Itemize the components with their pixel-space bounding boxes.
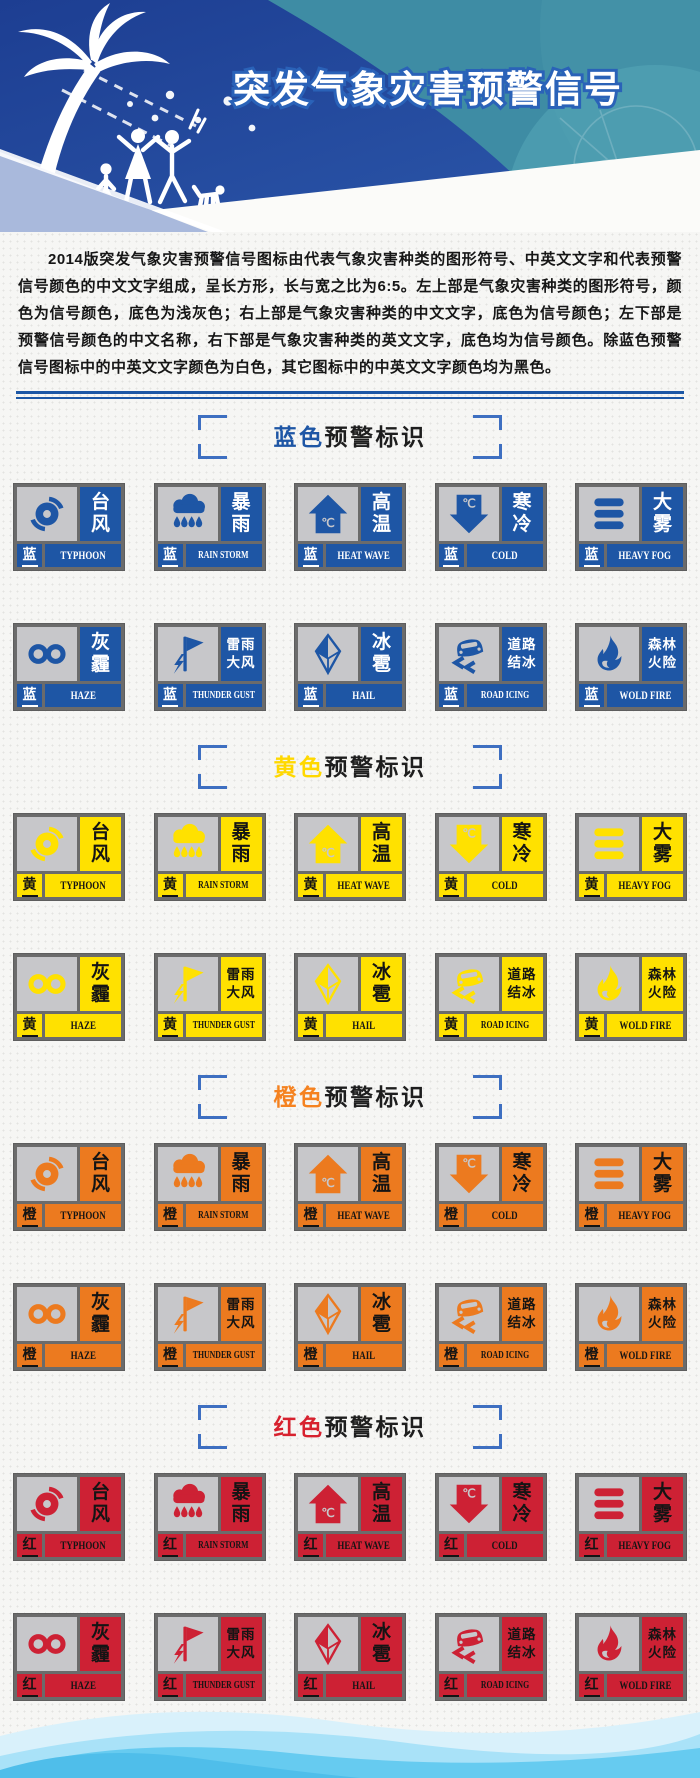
card-top: 森林火险 (579, 1287, 683, 1341)
warning-card-orange-fog: 大雾橙HEAVY FOG (575, 1143, 687, 1231)
card-row-red-1: 台风红TYPHOON暴雨红RAIN STORM℃高温红HEAT WAVE℃寒冷红… (0, 1473, 700, 1561)
card-color-badge: 黄 (17, 1014, 42, 1037)
card-top: 雷雨大风 (158, 957, 262, 1011)
card-icon-cell: ℃ (298, 817, 358, 871)
card-icon-cell (579, 487, 639, 541)
card-top: 暴雨 (158, 1477, 262, 1531)
wildfire-icon (586, 1292, 632, 1336)
card-color-badge: 黄 (579, 874, 604, 897)
card-color-badge: 蓝 (158, 684, 183, 707)
card-top: 雷雨大风 (158, 627, 262, 681)
card-color-badge: 黄 (439, 1014, 464, 1037)
card-top: 台风 (17, 1147, 121, 1201)
card-icon-cell: ℃ (298, 487, 358, 541)
card-color-badge: 橙 (439, 1344, 464, 1367)
card-color-badge: 黄 (158, 1014, 183, 1037)
card-color-badge: 红 (439, 1534, 464, 1557)
poster-page: 突发气象灾害预警信号 2014版突发气象灾害预警信号图标由代表气象灾害种类的图形… (0, 0, 700, 1778)
card-zh-label: 高温 (361, 1147, 402, 1201)
card-zh-label: 暴雨 (221, 1147, 262, 1201)
card-zh-label: 暴雨 (221, 487, 262, 541)
card-en-label: HAIL (326, 1344, 402, 1367)
card-icon-cell (439, 1617, 499, 1671)
card-zh-label: 雷雨大风 (221, 1617, 262, 1671)
card-zh-label: 高温 (361, 487, 402, 541)
warning-card-yellow-thunder-gust: 雷雨大风黄THUNDER GUST (154, 953, 266, 1041)
bracket-corner-icon (198, 415, 227, 430)
heatwave-icon: ℃ (305, 492, 351, 536)
card-zh-label: 大雾 (642, 487, 683, 541)
svg-text:℃: ℃ (321, 1506, 334, 1520)
card-bottom: 红HEAVY FOG (579, 1534, 683, 1557)
card-en-label: WOLD FIRE (607, 1014, 683, 1037)
card-icon-cell (298, 627, 358, 681)
card-color-badge: 蓝 (439, 684, 464, 707)
card-en-label: ROAD ICING (467, 684, 543, 707)
card-zh-label: 大雾 (642, 1147, 683, 1201)
card-bottom: 蓝HEAT WAVE (298, 544, 402, 567)
card-zh-label: 台风 (80, 1147, 121, 1201)
warning-card-orange-typhoon: 台风橙TYPHOON (13, 1143, 125, 1231)
thunder-gust-icon (165, 962, 211, 1006)
card-color-badge: 黄 (579, 1014, 604, 1037)
card-zh-label: 森林火险 (642, 1287, 683, 1341)
card-bottom: 黄THUNDER GUST (158, 1014, 262, 1037)
warning-card-red-fog: 大雾红HEAVY FOG (575, 1473, 687, 1561)
banner: 突发气象灾害预警信号 (0, 0, 700, 232)
card-color-badge: 蓝 (298, 684, 323, 707)
card-color-badge: 蓝 (439, 544, 464, 567)
card-color-badge: 红 (17, 1534, 42, 1557)
card-en-label: COLD (467, 874, 543, 897)
warning-sections: 蓝色预警标识台风蓝TYPHOON暴雨蓝RAIN STORM℃高温蓝HEAT WA… (0, 415, 700, 1701)
warning-card-yellow-haze: 灰霾黄HAZE (13, 953, 125, 1041)
card-en-label: THUNDER GUST (186, 1344, 262, 1367)
card-zh-label: 大雾 (642, 817, 683, 871)
section-title-rest: 预警标识 (325, 1084, 427, 1110)
warning-card-red-heatwave: ℃高温红HEAT WAVE (294, 1473, 406, 1561)
card-top: 雷雨大风 (158, 1617, 262, 1671)
card-en-label: THUNDER GUST (186, 684, 262, 707)
warning-card-blue-rainstorm: 暴雨蓝RAIN STORM (154, 483, 266, 571)
card-icon-cell (579, 1617, 639, 1671)
haze-icon (24, 962, 70, 1006)
card-icon-cell (298, 1287, 358, 1341)
warning-card-orange-wildfire: 森林火险橙WOLD FIRE (575, 1283, 687, 1371)
card-color-badge: 蓝 (298, 544, 323, 567)
card-zh-label: 寒冷 (502, 817, 543, 871)
card-bottom: 蓝COLD (439, 544, 543, 567)
card-icon-cell (158, 1617, 218, 1671)
card-icon-cell (158, 627, 218, 681)
card-top: 台风 (17, 1477, 121, 1531)
card-bottom: 黄HAZE (17, 1014, 121, 1037)
card-top: 大雾 (579, 1147, 683, 1201)
section-title-rest: 预警标识 (325, 424, 427, 450)
card-bottom: 红TYPHOON (17, 1534, 121, 1557)
card-bottom: 橙RAIN STORM (158, 1204, 262, 1227)
card-row-orange-1: 台风橙TYPHOON暴雨橙RAIN STORM℃高温橙HEAT WAVE℃寒冷橙… (0, 1143, 700, 1231)
card-color-badge: 橙 (158, 1204, 183, 1227)
card-en-label: TYPHOON (45, 874, 121, 897)
warning-card-yellow-cold: ℃寒冷黄COLD (435, 813, 547, 901)
warning-card-red-cold: ℃寒冷红COLD (435, 1473, 547, 1561)
bracket-corner-icon (473, 745, 502, 760)
cold-icon: ℃ (446, 822, 492, 866)
hail-icon (305, 1292, 351, 1336)
card-top: ℃高温 (298, 487, 402, 541)
card-color-badge: 橙 (579, 1344, 604, 1367)
card-icon-cell: ℃ (439, 1477, 499, 1531)
card-zh-label: 道路结冰 (502, 1287, 543, 1341)
card-icon-cell (158, 957, 218, 1011)
card-row-yellow-2: 灰霾黄HAZE雷雨大风黄THUNDER GUST冰雹黄HAIL道路结冰黄ROAD… (0, 953, 700, 1041)
card-zh-label: 暴雨 (221, 817, 262, 871)
warning-card-blue-haze: 灰霾蓝HAZE (13, 623, 125, 711)
cold-icon: ℃ (446, 1482, 492, 1526)
card-top: 道路结冰 (439, 1617, 543, 1671)
card-en-label: ROAD ICING (467, 1014, 543, 1037)
card-en-label: HEAVY FOG (607, 1534, 683, 1557)
card-color-badge: 橙 (158, 1344, 183, 1367)
card-bottom: 蓝ROAD ICING (439, 684, 543, 707)
warning-card-yellow-fog: 大雾黄HEAVY FOG (575, 813, 687, 901)
warning-card-orange-thunder-gust: 雷雨大风橙THUNDER GUST (154, 1283, 266, 1371)
card-icon-cell (579, 1477, 639, 1531)
haze-icon (24, 632, 70, 676)
card-en-label: HEAT WAVE (326, 1204, 402, 1227)
heatwave-icon: ℃ (305, 822, 351, 866)
svg-text:℃: ℃ (321, 846, 334, 860)
rainstorm-icon (165, 1482, 211, 1526)
warning-card-yellow-wildfire: 森林火险黄WOLD FIRE (575, 953, 687, 1041)
card-top: ℃寒冷 (439, 1477, 543, 1531)
card-zh-label: 冰雹 (361, 1617, 402, 1671)
card-color-badge: 蓝 (579, 544, 604, 567)
wildfire-icon (586, 632, 632, 676)
bracket-corner-icon (473, 1104, 502, 1119)
card-zh-label: 高温 (361, 1477, 402, 1531)
card-color-badge: 黄 (439, 874, 464, 897)
typhoon-icon (24, 1482, 70, 1526)
card-en-label: RAIN STORM (186, 544, 262, 567)
card-top: 森林火险 (579, 1617, 683, 1671)
card-zh-label: 雷雨大风 (221, 627, 262, 681)
card-bottom: 蓝RAIN STORM (158, 544, 262, 567)
card-zh-label: 灰霾 (80, 957, 121, 1011)
card-color-badge: 蓝 (17, 544, 42, 567)
card-bottom: 黄TYPHOON (17, 874, 121, 897)
road-icing-icon (446, 1622, 492, 1666)
bracket-corner-icon (473, 1434, 502, 1449)
bracket-corner-icon (198, 444, 227, 459)
card-zh-label: 台风 (80, 817, 121, 871)
heatwave-icon: ℃ (305, 1152, 351, 1196)
card-bottom: 蓝HEAVY FOG (579, 544, 683, 567)
card-top: 灰霾 (17, 1617, 121, 1671)
card-zh-label: 灰霾 (80, 1617, 121, 1671)
bracket-corner-icon (198, 1405, 227, 1420)
card-zh-label: 寒冷 (502, 1477, 543, 1531)
card-bottom: 红RAIN STORM (158, 1534, 262, 1557)
card-zh-label: 雷雨大风 (221, 957, 262, 1011)
card-color-badge: 黄 (298, 874, 323, 897)
fog-icon (586, 492, 632, 536)
card-top: 森林火险 (579, 957, 683, 1011)
card-top: ℃高温 (298, 1147, 402, 1201)
card-bottom: 黄HEAVY FOG (579, 874, 683, 897)
card-icon-cell (439, 627, 499, 681)
card-color-badge: 蓝 (17, 684, 42, 707)
card-top: 道路结冰 (439, 957, 543, 1011)
fog-icon (586, 1482, 632, 1526)
card-top: 大雾 (579, 1477, 683, 1531)
card-icon-cell: ℃ (298, 1477, 358, 1531)
card-en-label: HAIL (326, 684, 402, 707)
card-row-blue-2: 灰霾蓝HAZE雷雨大风蓝THUNDER GUST冰雹蓝HAIL道路结冰蓝ROAD… (0, 623, 700, 711)
warning-card-blue-hail: 冰雹蓝HAIL (294, 623, 406, 711)
svg-text:℃: ℃ (462, 1487, 475, 1501)
card-en-label: TYPHOON (45, 1204, 121, 1227)
card-zh-label: 道路结冰 (502, 1617, 543, 1671)
card-icon-cell (17, 1147, 77, 1201)
warning-card-orange-rainstorm: 暴雨橙RAIN STORM (154, 1143, 266, 1231)
card-icon-cell (17, 1617, 77, 1671)
road-icing-icon (446, 1292, 492, 1336)
card-color-badge: 橙 (579, 1204, 604, 1227)
card-top: 冰雹 (298, 1287, 402, 1341)
card-bottom: 蓝HAIL (298, 684, 402, 707)
section-title-color-word: 蓝色 (274, 424, 325, 450)
section-header-red: 红色预警标识 (198, 1405, 502, 1449)
card-top: 森林火险 (579, 627, 683, 681)
haze-icon (24, 1292, 70, 1336)
card-bottom: 橙HAIL (298, 1344, 402, 1367)
card-bottom: 橙THUNDER GUST (158, 1344, 262, 1367)
warning-card-blue-typhoon: 台风蓝TYPHOON (13, 483, 125, 571)
bracket-corner-icon (473, 1075, 502, 1090)
card-icon-cell: ℃ (298, 1147, 358, 1201)
card-top: 雷雨大风 (158, 1287, 262, 1341)
card-zh-label: 暴雨 (221, 1477, 262, 1531)
typhoon-icon (24, 492, 70, 536)
card-top: 灰霾 (17, 957, 121, 1011)
section-title-color-word: 橙色 (274, 1084, 325, 1110)
card-icon-cell (17, 817, 77, 871)
warning-card-orange-haze: 灰霾橙HAZE (13, 1283, 125, 1371)
warning-card-orange-heatwave: ℃高温橙HEAT WAVE (294, 1143, 406, 1231)
card-icon-cell (439, 957, 499, 1011)
intro-paragraph: 2014版突发气象灾害预警信号图标由代表气象灾害种类的图形符号、中英文文字和代表… (18, 246, 682, 381)
card-en-label: COLD (467, 1534, 543, 1557)
card-en-label: RAIN STORM (186, 1204, 262, 1227)
card-top: 暴雨 (158, 1147, 262, 1201)
card-color-badge: 红 (158, 1534, 183, 1557)
card-icon-cell (579, 1287, 639, 1341)
bracket-corner-icon (473, 774, 502, 789)
card-bottom: 黄COLD (439, 874, 543, 897)
card-top: 灰霾 (17, 627, 121, 681)
svg-text:℃: ℃ (321, 516, 334, 530)
card-icon-cell (579, 957, 639, 1011)
card-icon-cell (579, 1147, 639, 1201)
card-en-label: HEAVY FOG (607, 874, 683, 897)
card-zh-label: 道路结冰 (502, 957, 543, 1011)
card-zh-label: 森林火险 (642, 627, 683, 681)
card-icon-cell (158, 1477, 218, 1531)
card-bottom: 蓝HAZE (17, 684, 121, 707)
footer-wave (0, 1682, 700, 1778)
card-bottom: 橙WOLD FIRE (579, 1344, 683, 1367)
rainstorm-icon (165, 1152, 211, 1196)
thunder-gust-icon (165, 1622, 211, 1666)
card-icon-cell: ℃ (439, 817, 499, 871)
warning-card-yellow-road-icing: 道路结冰黄ROAD ICING (435, 953, 547, 1041)
card-icon-cell (158, 1287, 218, 1341)
card-zh-label: 冰雹 (361, 627, 402, 681)
section-title-color-word: 黄色 (274, 754, 325, 780)
card-bottom: 蓝WOLD FIRE (579, 684, 683, 707)
wildfire-icon (586, 1622, 632, 1666)
card-icon-cell (158, 1147, 218, 1201)
warning-card-blue-cold: ℃寒冷蓝COLD (435, 483, 547, 571)
card-color-badge: 橙 (298, 1204, 323, 1227)
card-zh-label: 森林火险 (642, 957, 683, 1011)
card-bottom: 橙COLD (439, 1204, 543, 1227)
hail-icon (305, 1622, 351, 1666)
card-icon-cell: ℃ (439, 1147, 499, 1201)
card-top: 台风 (17, 817, 121, 871)
card-row-orange-2: 灰霾橙HAZE雷雨大风橙THUNDER GUST冰雹橙HAIL道路结冰橙ROAD… (0, 1283, 700, 1371)
card-bottom: 黄RAIN STORM (158, 874, 262, 897)
card-en-label: TYPHOON (45, 1534, 121, 1557)
card-top: ℃高温 (298, 1477, 402, 1531)
warning-card-blue-thunder-gust: 雷雨大风蓝THUNDER GUST (154, 623, 266, 711)
road-icing-icon (446, 962, 492, 1006)
card-zh-label: 台风 (80, 1477, 121, 1531)
bracket-corner-icon (198, 1075, 227, 1090)
thunder-gust-icon (165, 1292, 211, 1336)
warning-card-yellow-rainstorm: 暴雨黄RAIN STORM (154, 813, 266, 901)
cold-icon: ℃ (446, 1152, 492, 1196)
rainstorm-icon (165, 492, 211, 536)
bracket-corner-icon (198, 774, 227, 789)
section-header-blue: 蓝色预警标识 (198, 415, 502, 459)
svg-text:℃: ℃ (321, 1176, 334, 1190)
card-en-label: TYPHOON (45, 544, 121, 567)
card-top: ℃高温 (298, 817, 402, 871)
card-en-label: ROAD ICING (467, 1344, 543, 1367)
svg-text:℃: ℃ (462, 497, 475, 511)
card-bottom: 黄WOLD FIRE (579, 1014, 683, 1037)
card-bottom: 蓝TYPHOON (17, 544, 121, 567)
warning-card-orange-hail: 冰雹橙HAIL (294, 1283, 406, 1371)
card-en-label: HEAVY FOG (607, 544, 683, 567)
card-color-badge: 黄 (158, 874, 183, 897)
card-icon-cell (17, 1287, 77, 1341)
fog-icon (586, 822, 632, 866)
thunder-gust-icon (165, 632, 211, 676)
card-color-badge: 蓝 (158, 544, 183, 567)
card-en-label: RAIN STORM (186, 1534, 262, 1557)
card-icon-cell (17, 487, 77, 541)
card-top: 暴雨 (158, 487, 262, 541)
wildfire-icon (586, 962, 632, 1006)
warning-card-yellow-hail: 冰雹黄HAIL (294, 953, 406, 1041)
card-bottom: 黄HAIL (298, 1014, 402, 1037)
card-top: 大雾 (579, 487, 683, 541)
card-color-badge: 蓝 (579, 684, 604, 707)
card-color-badge: 橙 (17, 1344, 42, 1367)
warning-card-yellow-typhoon: 台风黄TYPHOON (13, 813, 125, 901)
card-color-badge: 黄 (17, 874, 42, 897)
card-zh-label: 冰雹 (361, 957, 402, 1011)
card-en-label: WOLD FIRE (607, 1344, 683, 1367)
card-icon-cell (298, 1617, 358, 1671)
card-top: 冰雹 (298, 1617, 402, 1671)
section-header-orange: 橙色预警标识 (198, 1075, 502, 1119)
banner-title: 突发气象灾害预警信号 (233, 69, 623, 110)
cold-icon: ℃ (446, 492, 492, 536)
card-bottom: 橙HAZE (17, 1344, 121, 1367)
card-en-label: HEAVY FOG (607, 1204, 683, 1227)
typhoon-icon (24, 822, 70, 866)
card-en-label: HAZE (45, 1014, 121, 1037)
warning-card-red-typhoon: 台风红TYPHOON (13, 1473, 125, 1561)
section-title-rest: 预警标识 (325, 1414, 427, 1440)
fog-icon (586, 1152, 632, 1196)
card-icon-cell (158, 487, 218, 541)
card-zh-label: 灰霾 (80, 1287, 121, 1341)
card-en-label: HAZE (45, 684, 121, 707)
card-top: 冰雹 (298, 957, 402, 1011)
card-color-badge: 红 (579, 1534, 604, 1557)
rainstorm-icon (165, 822, 211, 866)
section-title: 红色预警标识 (198, 1405, 502, 1449)
bracket-corner-icon (198, 1434, 227, 1449)
card-zh-label: 道路结冰 (502, 627, 543, 681)
card-zh-label: 寒冷 (502, 1147, 543, 1201)
card-top: 道路结冰 (439, 627, 543, 681)
warning-card-yellow-heatwave: ℃高温黄HEAT WAVE (294, 813, 406, 901)
card-bottom: 橙HEAVY FOG (579, 1204, 683, 1227)
card-bottom: 红HEAT WAVE (298, 1534, 402, 1557)
card-top: ℃寒冷 (439, 487, 543, 541)
card-top: 暴雨 (158, 817, 262, 871)
warning-card-blue-road-icing: 道路结冰蓝ROAD ICING (435, 623, 547, 711)
card-bottom: 橙TYPHOON (17, 1204, 121, 1227)
card-zh-label: 冰雹 (361, 1287, 402, 1341)
card-bottom: 黄HEAT WAVE (298, 874, 402, 897)
hail-icon (305, 962, 351, 1006)
card-top: ℃寒冷 (439, 1147, 543, 1201)
card-en-label: WOLD FIRE (607, 684, 683, 707)
card-bottom: 橙HEAT WAVE (298, 1204, 402, 1227)
card-zh-label: 大雾 (642, 1477, 683, 1531)
road-icing-icon (446, 632, 492, 676)
card-icon-cell (298, 957, 358, 1011)
card-color-badge: 橙 (298, 1344, 323, 1367)
card-icon-cell (579, 627, 639, 681)
section-header-yellow: 黄色预警标识 (198, 745, 502, 789)
card-top: 灰霾 (17, 1287, 121, 1341)
card-bottom: 蓝THUNDER GUST (158, 684, 262, 707)
card-zh-label: 雷雨大风 (221, 1287, 262, 1341)
card-en-label: HEAT WAVE (326, 544, 402, 567)
card-icon-cell: ℃ (439, 487, 499, 541)
warning-card-orange-road-icing: 道路结冰橙ROAD ICING (435, 1283, 547, 1371)
card-en-label: HAIL (326, 1014, 402, 1037)
